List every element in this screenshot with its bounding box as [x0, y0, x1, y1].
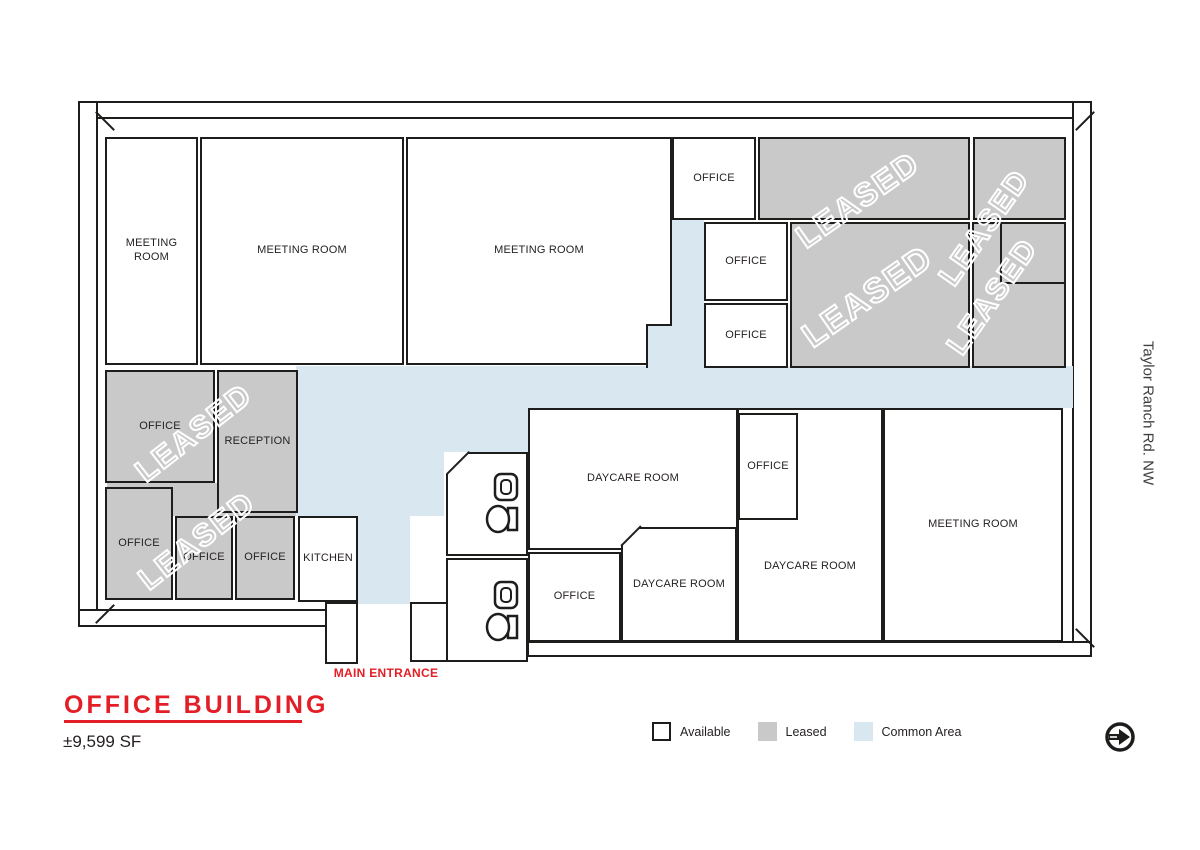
common-area-entrance-hall [358, 516, 410, 604]
room-office-top: OFFICE [672, 137, 756, 220]
legend-label: Leased [786, 725, 827, 739]
common-area-west-lobby [296, 408, 444, 516]
room-label: OFFICE [725, 255, 767, 269]
page-title: OFFICE BUILDING [64, 691, 328, 720]
room-meeting-2: MEETING ROOM [200, 137, 404, 365]
room-label: OFFICE [747, 460, 789, 474]
room-label: MEETING ROOM [928, 518, 1018, 532]
room-meeting-1: MEETING ROOM [105, 137, 198, 365]
room-label: DAYCARE ROOM [633, 578, 725, 592]
room-label: KITCHEN [303, 552, 353, 566]
toilet-icon [484, 580, 520, 642]
street-name-label: Taylor Ranch Rd. NW [1140, 341, 1157, 485]
common-area-corner-notch [646, 324, 672, 368]
room-office-low: OFFICE [704, 303, 788, 368]
room-label: DAYCARE ROOM [587, 472, 679, 486]
room-meeting-4: MEETING ROOM [883, 408, 1063, 642]
title-underline [64, 720, 302, 723]
room-daycare-south: DAYCARE ROOM [621, 527, 737, 642]
room-label: MEETING ROOM [123, 237, 181, 265]
entrance-vestibule-west [325, 602, 358, 664]
legend: Available Leased Common Area [652, 722, 961, 741]
room-label: MEETING ROOM [257, 244, 347, 258]
room-office-leased-sw3: OFFICE [235, 516, 295, 600]
room-office-daycare-south: OFFICE [528, 552, 621, 642]
room-label: MEETING ROOM [494, 244, 584, 258]
legend-item-leased: Leased [758, 722, 827, 741]
room-kitchen: KITCHEN [298, 516, 358, 602]
common-area-main-corridor [296, 366, 1073, 408]
main-entrance-label: MAIN ENTRANCE [330, 666, 442, 681]
room-office-mid: OFFICE [704, 222, 788, 301]
outer-wall-bottom-right [527, 641, 1092, 657]
common-area-north-corridor [672, 220, 704, 368]
legend-item-common: Common Area [854, 722, 962, 741]
room-label: OFFICE [244, 551, 286, 565]
entrance-vestibule-east [410, 602, 448, 662]
room-meeting-3: MEETING ROOM [406, 137, 672, 365]
common-area-swatch [854, 722, 873, 741]
toilet-icon [484, 472, 520, 534]
room-office-daycare-east: OFFICE [738, 413, 798, 520]
available-swatch [652, 722, 671, 741]
room-label: OFFICE [693, 172, 735, 186]
room-label: OFFICE [725, 329, 767, 343]
room-label: DAYCARE ROOM [739, 560, 881, 574]
outer-wall-top [78, 101, 1092, 119]
legend-item-available: Available [652, 722, 731, 741]
building-area-label: ±9,599 SF [63, 732, 141, 752]
room-label: OFFICE [118, 537, 160, 551]
leased-swatch [758, 722, 777, 741]
legend-label: Available [680, 725, 731, 739]
north-arrow-icon [1100, 720, 1140, 756]
common-area-restroom-lobby [444, 408, 528, 452]
outer-wall-left [78, 101, 98, 627]
room-label: OFFICE [554, 590, 596, 604]
floor-plan-canvas: MEETING ROOM MEETING ROOM MEETING ROOM O… [0, 0, 1200, 850]
room-label: RECEPTION [225, 435, 291, 449]
outer-wall-bottom-left [78, 609, 334, 627]
outer-wall-right [1072, 101, 1092, 657]
legend-label: Common Area [882, 725, 962, 739]
